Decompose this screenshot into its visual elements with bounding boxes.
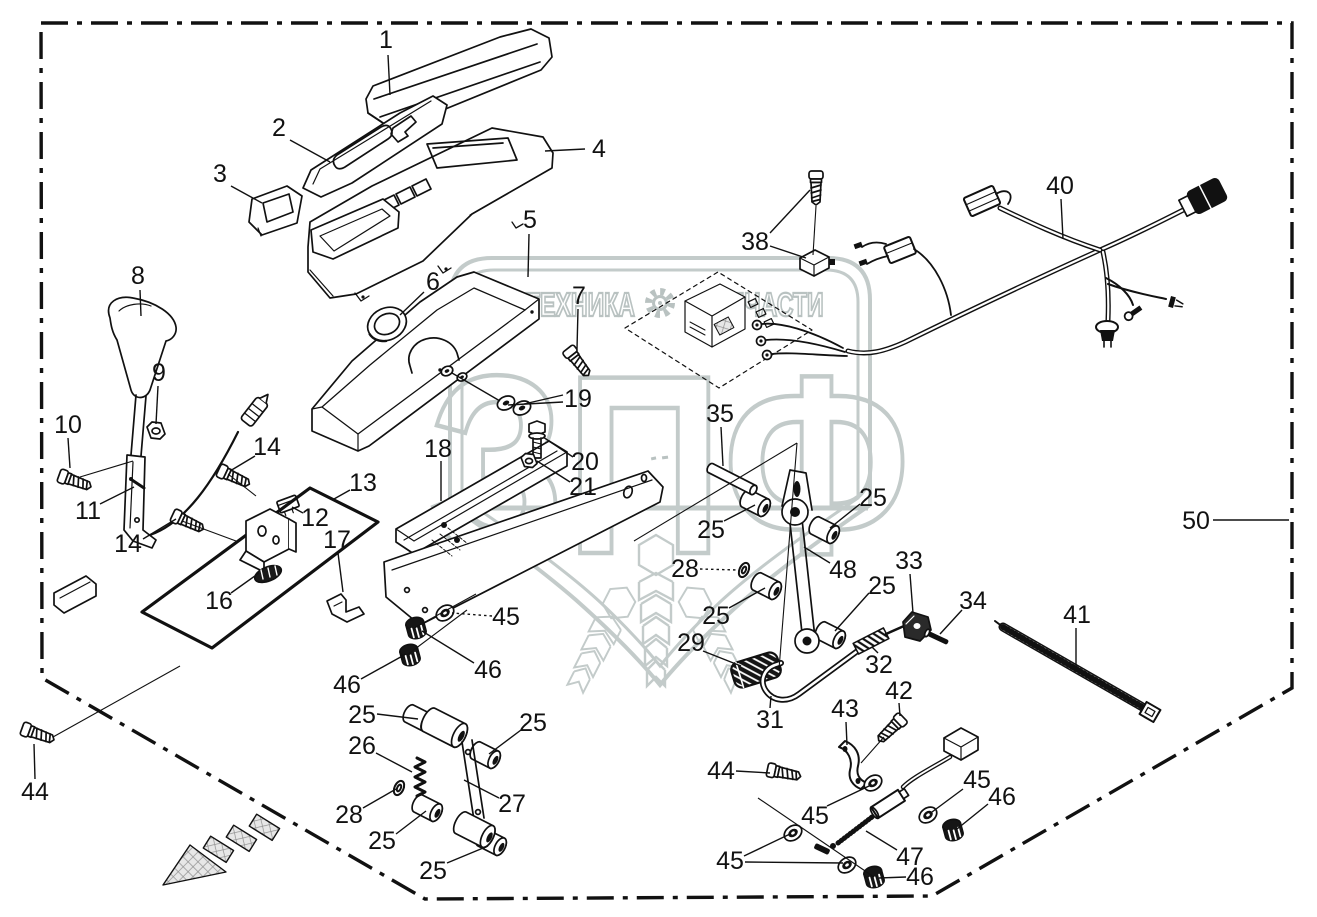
part-label-27: 27	[498, 790, 526, 818]
part-label-18: 18	[424, 435, 452, 463]
part-label-25: 25	[859, 484, 887, 512]
part-label-25: 25	[519, 709, 547, 737]
part-label-2: 2	[272, 114, 286, 142]
part-41-cable-tie	[995, 621, 1160, 722]
part-label-45: 45	[492, 603, 520, 631]
part-label-32: 32	[865, 651, 893, 679]
part-label-16: 16	[205, 587, 233, 615]
leader-line	[827, 786, 869, 806]
leader-line	[156, 386, 158, 424]
part-label-40: 40	[1046, 172, 1074, 200]
part-label-17: 17	[323, 526, 351, 554]
part-14-screws	[170, 463, 253, 535]
part-label-4: 4	[592, 135, 606, 163]
part-label-47: 47	[896, 843, 924, 871]
part-label-48: 48	[829, 556, 857, 584]
leader-line	[577, 309, 578, 349]
leader-line	[230, 456, 255, 471]
part-42-screw	[874, 712, 908, 746]
part-label-29: 29	[677, 629, 705, 657]
part-label-46: 46	[333, 671, 361, 699]
leader-line	[376, 753, 412, 772]
gear-icon	[649, 292, 672, 315]
assembly-axis-line	[182, 521, 236, 541]
part-label-33: 33	[895, 547, 923, 575]
leader-line	[34, 744, 35, 779]
part-label-11: 11	[75, 497, 101, 525]
part-label-35: 35	[706, 400, 734, 428]
leader-line	[68, 438, 70, 468]
part-label-45: 45	[801, 802, 829, 830]
leader-line	[363, 789, 396, 808]
parts-diagram-page: ЗПФ ТЕХНИКА ЗАПЧАСТИ	[0, 0, 1317, 917]
assembly-axis-line	[813, 206, 816, 255]
leader-line	[143, 519, 176, 539]
part-label-20: 20	[571, 448, 599, 476]
part-label-25: 25	[368, 827, 396, 855]
part-label-43: 43	[831, 695, 859, 723]
leader-line	[231, 186, 262, 203]
diagram-canvas: ЗПФ ТЕХНИКА ЗАПЧАСТИ	[0, 0, 1317, 917]
part-label-8: 8	[131, 262, 145, 290]
part-label-38: 38	[741, 228, 769, 256]
part-label-14: 14	[114, 530, 142, 558]
leader-line	[290, 140, 330, 162]
leader-line	[846, 722, 847, 745]
leader-line	[879, 877, 906, 878]
leader-line	[338, 553, 343, 592]
leader-line	[910, 574, 913, 613]
leader-line	[452, 613, 492, 616]
leader-line	[334, 490, 350, 499]
leader-line	[770, 190, 810, 233]
leader-line	[736, 771, 770, 773]
leader-line	[361, 654, 406, 679]
part-label-31: 31	[756, 706, 784, 734]
leader-line	[528, 234, 529, 277]
part-label-45: 45	[963, 766, 991, 794]
part-label-10: 10	[54, 411, 82, 439]
leader-line	[744, 834, 790, 856]
part-label-21: 21	[569, 473, 597, 501]
part-label-14: 14	[253, 433, 281, 461]
leader-line	[489, 730, 521, 754]
part-label-44: 44	[21, 778, 49, 806]
part-label-25: 25	[419, 857, 447, 885]
part-label-6: 6	[426, 268, 440, 296]
part-label-1: 1	[379, 26, 393, 54]
part-label-50: 50	[1182, 507, 1210, 535]
part-label-13: 13	[349, 469, 377, 497]
part-label-41: 41	[1063, 601, 1091, 629]
leader-line	[957, 804, 988, 829]
assembly-axis-line	[53, 666, 180, 737]
leader-line	[866, 831, 897, 850]
part-1-armrest-lid	[366, 29, 552, 127]
part-label-25: 25	[697, 516, 725, 544]
part-label-19: 19	[564, 385, 592, 413]
assembly-axis-line	[861, 737, 884, 763]
part-label-5: 5	[523, 206, 537, 234]
part-label-3: 3	[213, 160, 227, 188]
part-label-26: 26	[348, 732, 376, 760]
part-43-bracket	[839, 741, 867, 789]
leader-line	[745, 862, 843, 863]
part-21-nut	[521, 454, 537, 468]
leader-line	[231, 573, 259, 593]
leader-line	[140, 290, 141, 316]
part-label-25: 25	[868, 572, 896, 600]
part-label-45: 45	[716, 847, 744, 875]
part-16-bracket	[240, 509, 296, 586]
part-10-bolt	[57, 469, 94, 494]
part-27-link	[418, 706, 498, 850]
part-3-bezel	[249, 186, 302, 236]
part-label-46: 46	[988, 783, 1016, 811]
part-38-connector-kit	[800, 171, 835, 276]
part-32-spring	[853, 626, 904, 654]
part-label-44: 44	[707, 757, 735, 785]
assembly-axis-line	[80, 461, 133, 477]
part-8-control-lever	[109, 297, 274, 548]
part-9-nut	[147, 422, 165, 439]
leader-line	[396, 811, 426, 834]
part-label-46: 46	[474, 656, 502, 684]
part-label-28: 28	[335, 801, 363, 829]
part-label-25: 25	[348, 701, 376, 729]
part-label-25: 25	[702, 602, 730, 630]
part-label-34: 34	[959, 587, 987, 615]
part-label-9: 9	[152, 359, 166, 387]
leader-line	[422, 631, 474, 663]
part-34-pin	[924, 628, 950, 646]
part-label-28: 28	[671, 555, 699, 583]
part-label-42: 42	[885, 677, 913, 705]
leader-line	[447, 846, 488, 863]
part-label-7: 7	[572, 282, 586, 310]
part-26-spring	[415, 758, 425, 796]
part-29-pedal-pad	[729, 651, 783, 690]
direction-arrow-icon	[163, 814, 280, 885]
leader-line	[932, 789, 963, 812]
